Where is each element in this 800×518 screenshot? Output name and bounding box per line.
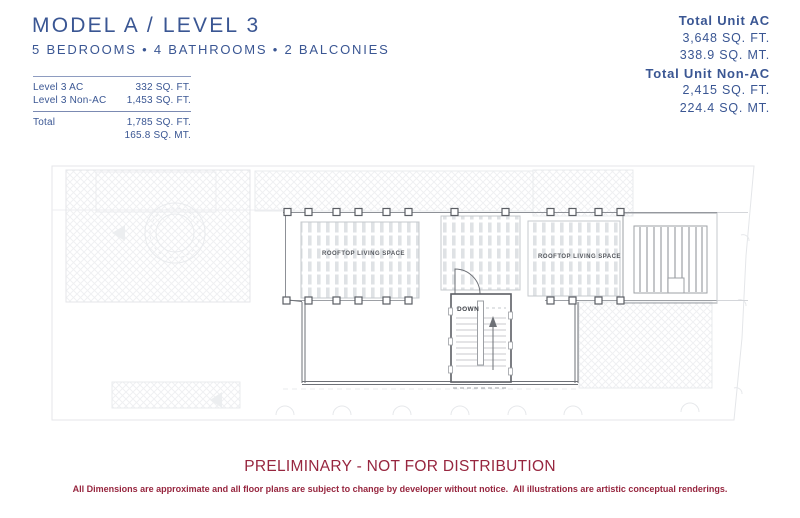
- rooftop-left-label: ROOFTOP LIVING SPACE: [322, 251, 405, 257]
- floor-plan-drawing: ROOFTOP LIVING SPACE ROOFTOP LIVING SPAC…: [0, 0, 800, 518]
- stair-down-label: DOWN: [457, 306, 479, 313]
- disclaimer-text: All Dimensions are approximate and all f…: [0, 484, 800, 494]
- floor-plan-sheet: MODEL A / LEVEL 3 5 BEDROOMS • 4 BATHROO…: [0, 0, 800, 518]
- pergola: [623, 213, 717, 303]
- column-markers-top: [284, 209, 624, 216]
- middle-deck: [441, 216, 520, 290]
- shrub-row: [276, 403, 699, 415]
- rooftop-right-label: ROOFTOP LIVING SPACE: [538, 254, 621, 260]
- left-deck: [301, 222, 419, 298]
- preliminary-warning: PRELIMINARY - NOT FOR DISTRIBUTION: [0, 458, 800, 476]
